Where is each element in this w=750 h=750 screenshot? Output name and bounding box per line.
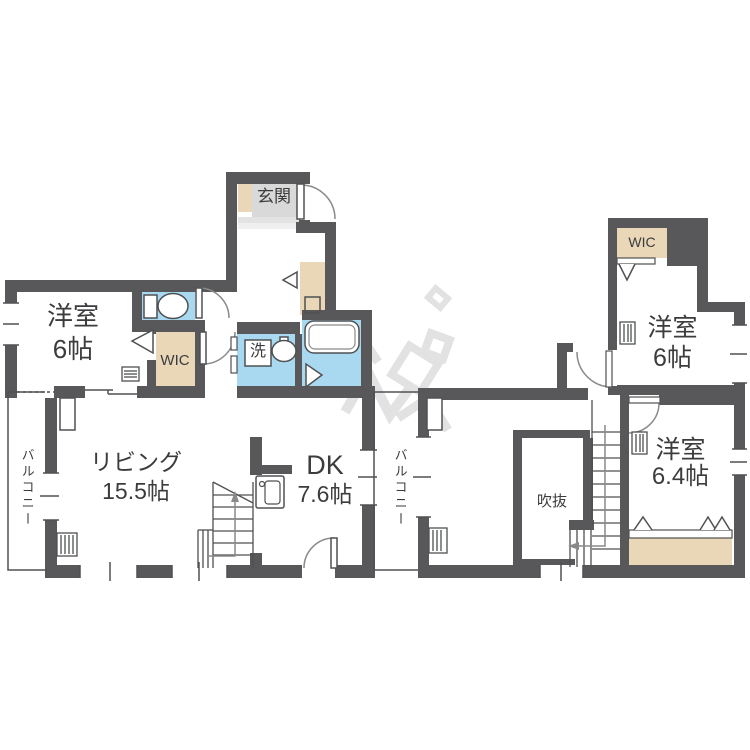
heater-icon xyxy=(429,528,447,553)
wic1f-label: WIC xyxy=(153,353,197,369)
bedroom1f-name: 洋室 xyxy=(30,303,116,330)
entry-step-1 xyxy=(238,217,299,223)
floor1-fixtures xyxy=(57,294,359,557)
toilet-icon xyxy=(158,294,188,319)
toilet-door-leaf xyxy=(196,288,202,318)
dk-door-leaf xyxy=(331,538,337,568)
sink-icon xyxy=(272,341,296,362)
kitchen-sink-icon xyxy=(265,481,280,504)
entrance-label: 玄関 xyxy=(244,188,304,206)
heater-icon xyxy=(57,533,77,556)
bedroom1-door-leaf xyxy=(606,351,612,387)
dk-door-arc xyxy=(304,538,334,568)
bedroom2f1-name: 洋室 xyxy=(630,315,715,341)
toilet-door-arc xyxy=(199,288,229,318)
living-size: 15.5帖 xyxy=(85,479,187,503)
toilet-icon xyxy=(144,295,157,318)
wic-folding-door-icon xyxy=(619,264,635,280)
dk-name: DK xyxy=(285,451,365,479)
floorplan-canvas: 玄関 洋室 6帖 WIC 洗 リビング 15.5帖 DK 7.6帖 バルコニー … xyxy=(0,0,750,750)
fixture-outline xyxy=(427,398,442,430)
void-label: 吹抜 xyxy=(528,494,576,510)
folding-door-jamb xyxy=(231,337,237,350)
folding-door-jamb xyxy=(617,258,655,264)
cabinet-door-icon xyxy=(283,272,297,288)
bedroom2f2-size: 6.4帖 xyxy=(638,464,723,489)
folding-door-jamb xyxy=(231,356,237,373)
floor2-plan xyxy=(374,218,747,581)
bedroom1f-size: 6帖 xyxy=(30,336,116,363)
closet-fold-icon xyxy=(700,517,716,530)
heater-icon xyxy=(122,367,139,381)
sliding-door xyxy=(85,386,137,398)
bedroom2f1-size: 6帖 xyxy=(630,345,715,371)
floor2-walls xyxy=(418,218,745,578)
window xyxy=(80,565,137,578)
wic-door-icon xyxy=(132,330,153,353)
stairs-up xyxy=(198,482,253,568)
closet-fold-icon xyxy=(714,517,730,530)
entry-step-2 xyxy=(238,223,299,229)
hall-door-leaf xyxy=(200,332,206,364)
bedroom2-door-arc xyxy=(629,403,659,433)
balcony1f-label: バルコニー xyxy=(20,438,34,538)
dk-size: 7.6帖 xyxy=(285,482,365,506)
floorplan-drawing xyxy=(0,0,750,750)
balcony2f-label: バルコニー xyxy=(393,438,407,538)
wash-label: 洗 xyxy=(245,344,271,361)
living-name: リビング xyxy=(85,450,187,474)
bedroom2f2-name: 洋室 xyxy=(638,437,723,463)
hall-door-arc xyxy=(203,332,235,364)
hall-cabinet xyxy=(300,262,325,315)
fixture-outline xyxy=(60,398,75,430)
bedroom2-door-leaf xyxy=(629,397,660,403)
closet-fold-icon xyxy=(634,517,652,530)
stairs-down xyxy=(568,400,620,567)
closet-floor xyxy=(629,538,732,568)
closet-jamb xyxy=(629,530,732,538)
floor1-plan xyxy=(3,172,377,581)
wic2f-label: WIC xyxy=(619,235,665,250)
